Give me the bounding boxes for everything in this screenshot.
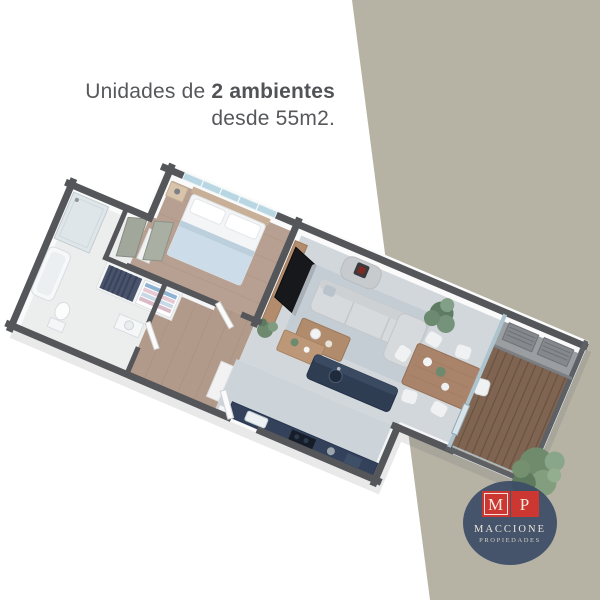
logo-subtitle: PROPIEDADES bbox=[479, 537, 541, 544]
headline-line1-bold: 2 ambientes bbox=[211, 80, 335, 103]
headline-line2: desde 55m2. bbox=[55, 105, 335, 132]
headline-line1: Unidades de 2 ambientes bbox=[55, 78, 335, 105]
logo-letter-p: P bbox=[511, 491, 539, 517]
logo-monogram: M P bbox=[482, 491, 539, 517]
logo-letter-m: M bbox=[482, 491, 510, 517]
headline: Unidades de 2 ambientes desde 55m2. bbox=[55, 78, 335, 132]
logo-name: MACCIONE bbox=[474, 524, 546, 535]
agency-logo: M P MACCIONE PROPIEDADES bbox=[463, 481, 557, 565]
headline-line1-regular: Unidades de bbox=[85, 80, 211, 103]
